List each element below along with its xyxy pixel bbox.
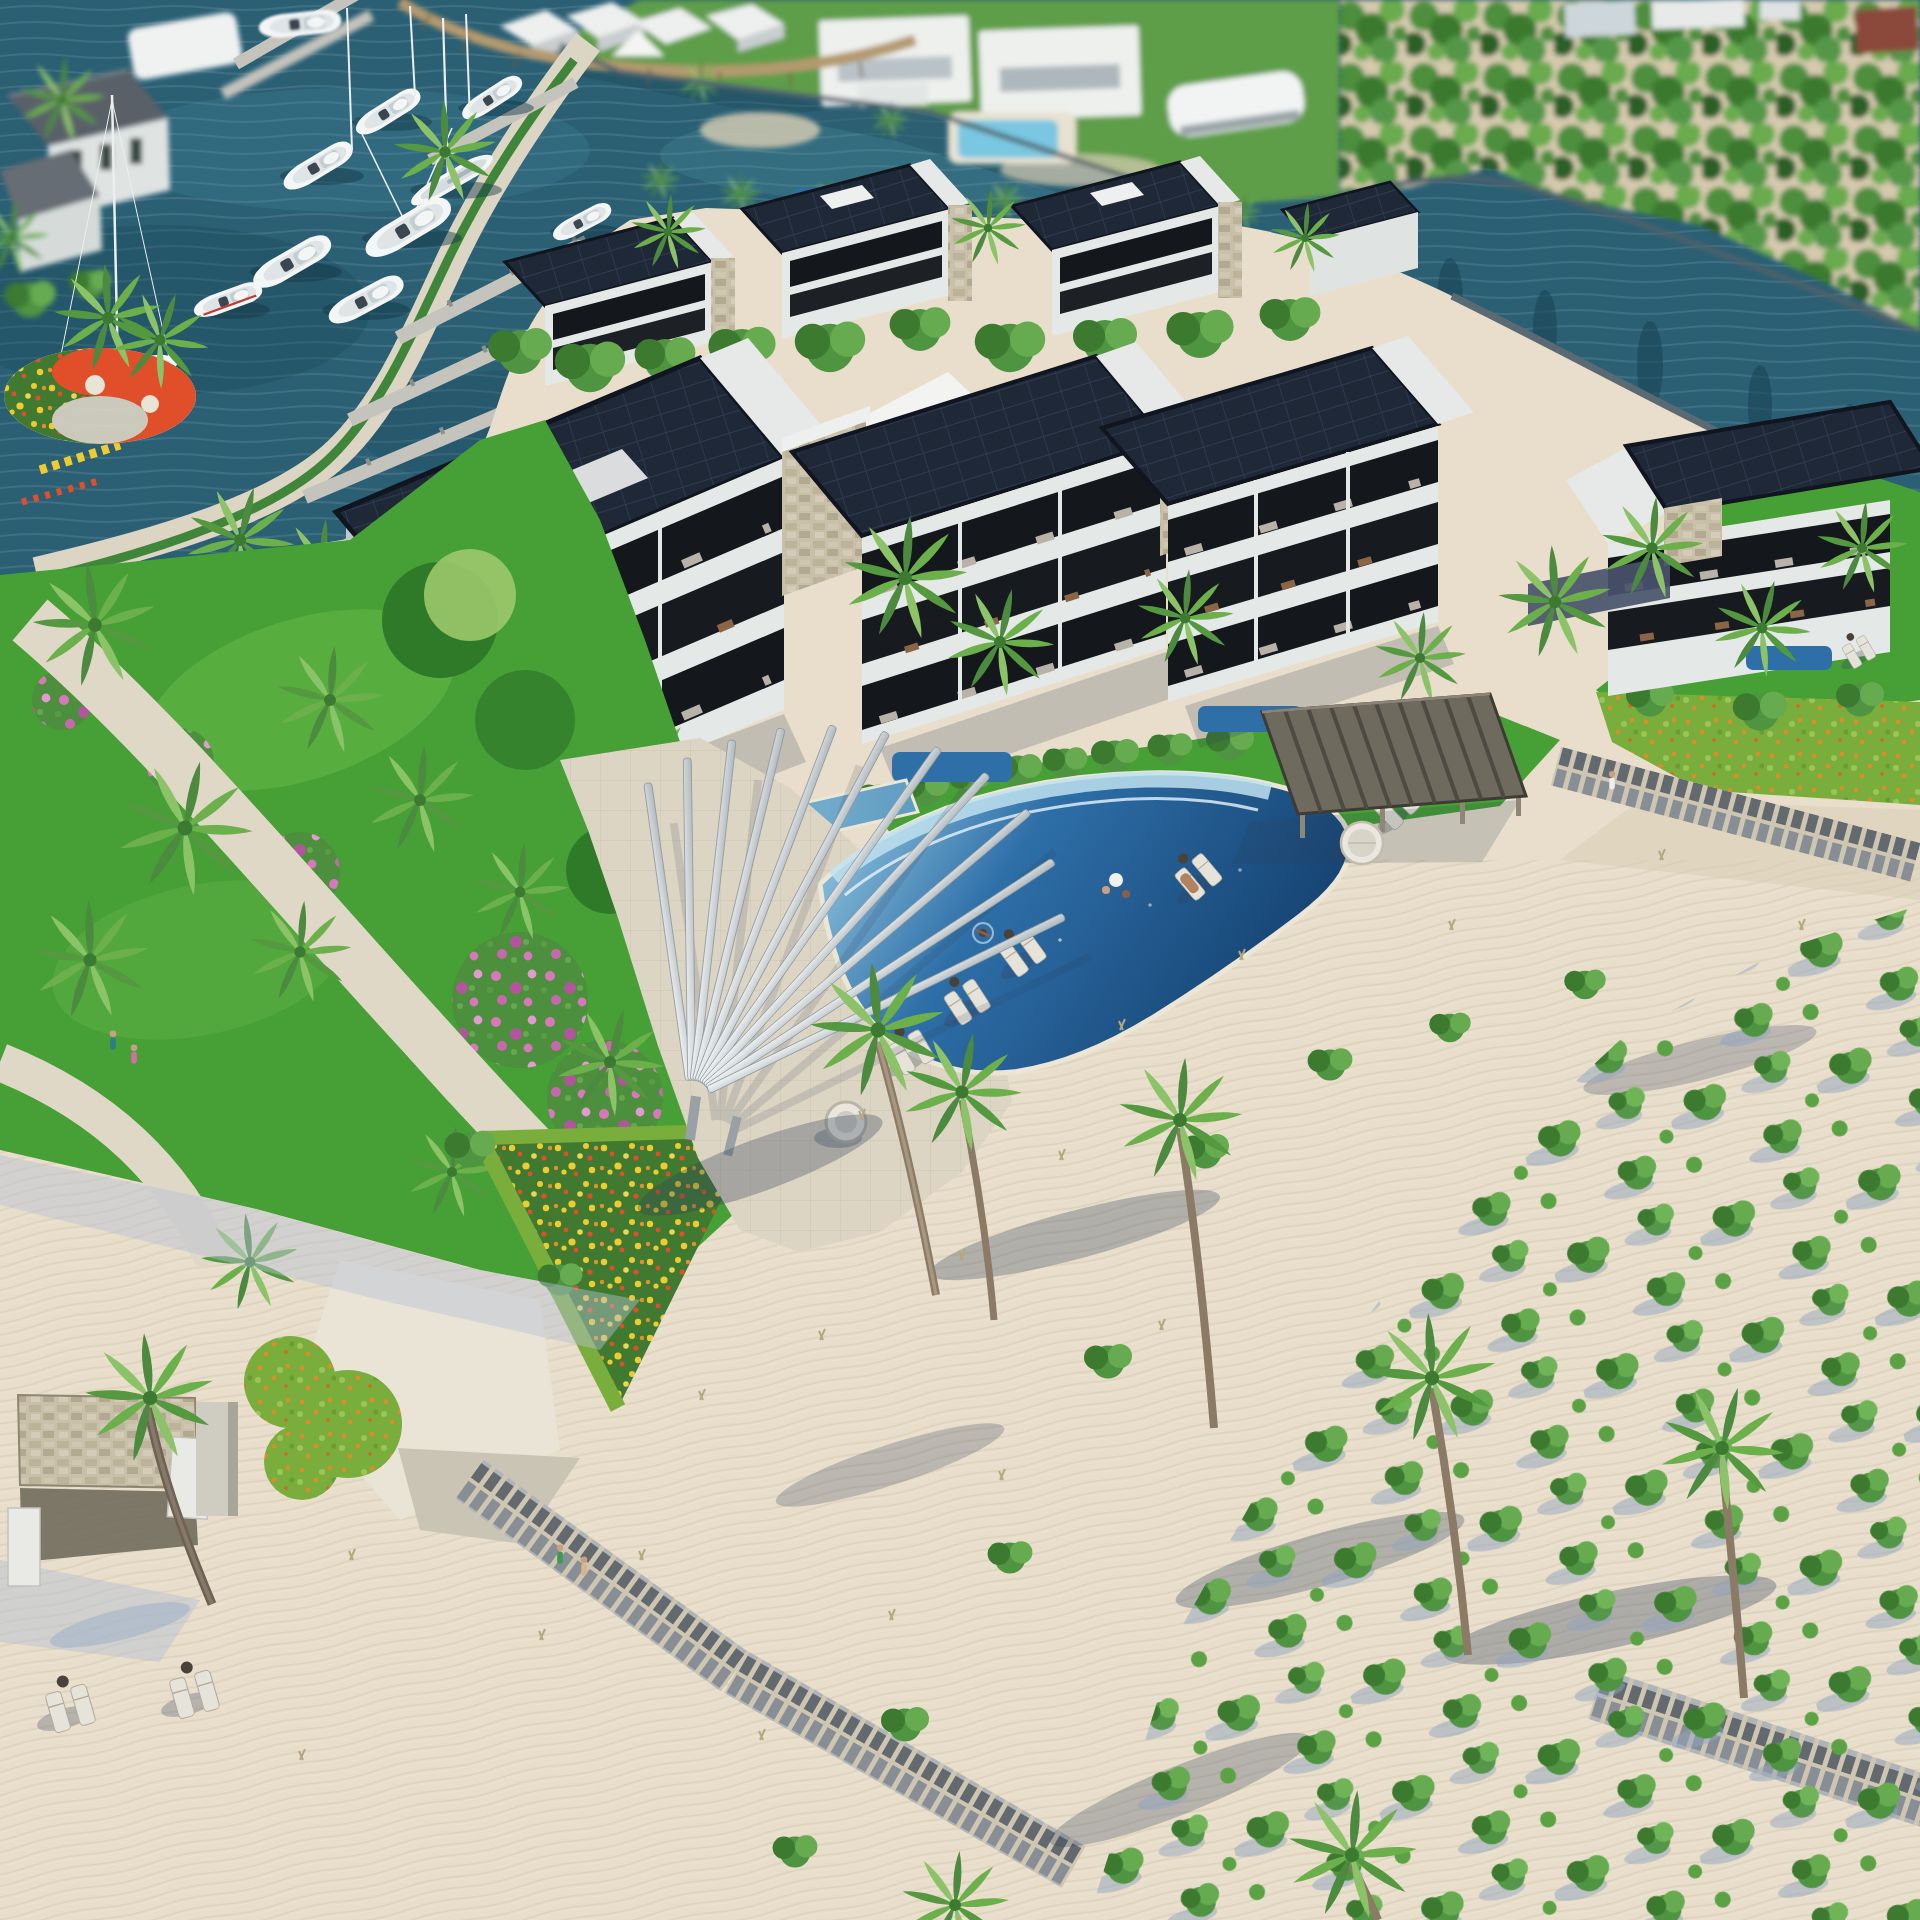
pedestrian-beach-path xyxy=(1609,771,1615,789)
flower-circle xyxy=(4,348,196,444)
plunge-pool xyxy=(892,752,1012,782)
roller-door xyxy=(8,1508,40,1586)
plunge-pool xyxy=(1746,646,1832,670)
aerial-resort-rendering xyxy=(0,0,1920,1920)
scene-canvas xyxy=(0,0,1920,1920)
